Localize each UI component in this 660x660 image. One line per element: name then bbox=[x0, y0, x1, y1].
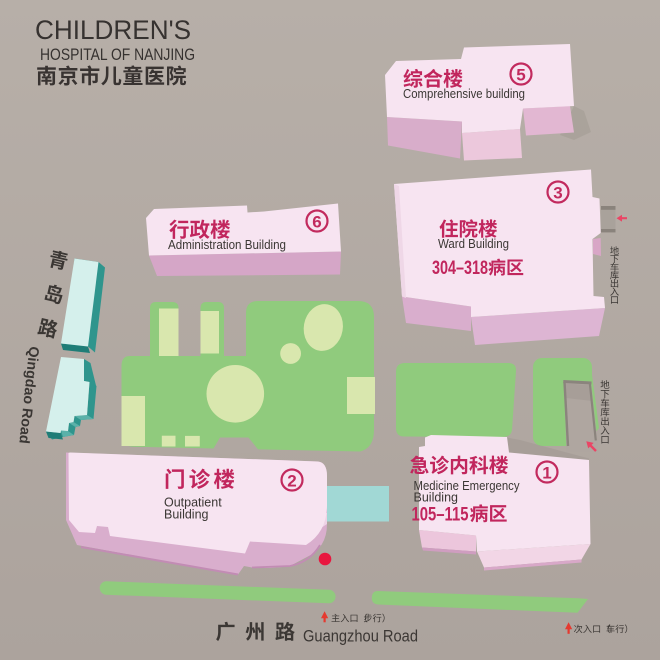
svg-text:HOSPITAL OF NANJING: HOSPITAL OF NANJING bbox=[40, 45, 195, 64]
svg-text:Ward Building: Ward Building bbox=[438, 236, 509, 251]
svg-text:2: 2 bbox=[287, 472, 296, 491]
svg-text:Administration Building: Administration Building bbox=[168, 237, 286, 252]
svg-text:6: 6 bbox=[312, 213, 321, 232]
svg-text:Building: Building bbox=[164, 508, 209, 522]
svg-text:Comprehensive building: Comprehensive building bbox=[403, 86, 525, 101]
svg-text:CHILDREN'S: CHILDREN'S bbox=[35, 15, 191, 45]
svg-text:304–318: 304–318 bbox=[432, 258, 488, 279]
svg-text:Building: Building bbox=[414, 491, 459, 505]
svg-text:Guangzhou Road: Guangzhou Road bbox=[303, 627, 418, 646]
svg-text:5: 5 bbox=[516, 66, 525, 85]
svg-text:1: 1 bbox=[542, 464, 551, 483]
svg-text:105–115: 105–115 bbox=[412, 505, 469, 526]
svg-text:3: 3 bbox=[553, 184, 562, 203]
